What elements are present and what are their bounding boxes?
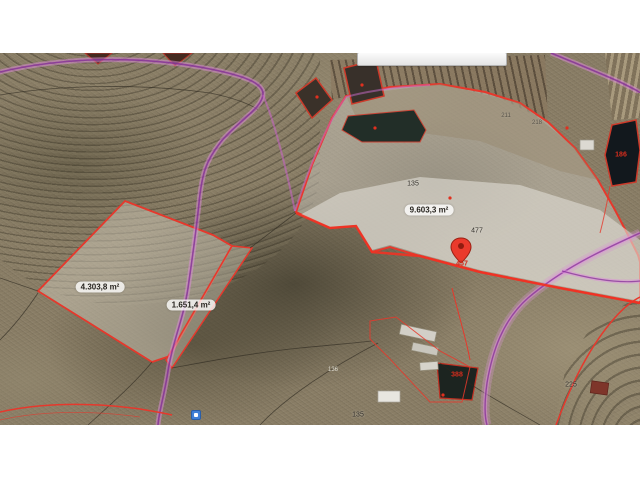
- pond-right: [605, 120, 640, 186]
- building-red-roof: [590, 381, 609, 395]
- building-shed-3: [420, 361, 439, 370]
- blue-map-icon[interactable]: [191, 410, 201, 420]
- map-canvas[interactable]: 4.303,8 m² 1.651,4 m² 9.603,3 m² 135 477…: [0, 53, 640, 425]
- map-vector-overlay: [0, 53, 640, 425]
- parcel-left-outline[interactable]: [38, 201, 232, 362]
- building-white: [378, 391, 400, 402]
- page: 4.303,8 m² 1.651,4 m² 9.603,3 m² 135 477…: [0, 0, 640, 480]
- dark-parcel-small-2: [344, 60, 384, 104]
- dark-parcel-small-1: [296, 78, 332, 118]
- building-right: [580, 140, 594, 150]
- building-shed-1: [399, 324, 436, 341]
- road-purple-top-right: [551, 53, 640, 93]
- building-shed-2: [411, 342, 438, 355]
- floating-toolbar[interactable]: [357, 53, 507, 66]
- blue-map-icon-glyph: [194, 413, 198, 417]
